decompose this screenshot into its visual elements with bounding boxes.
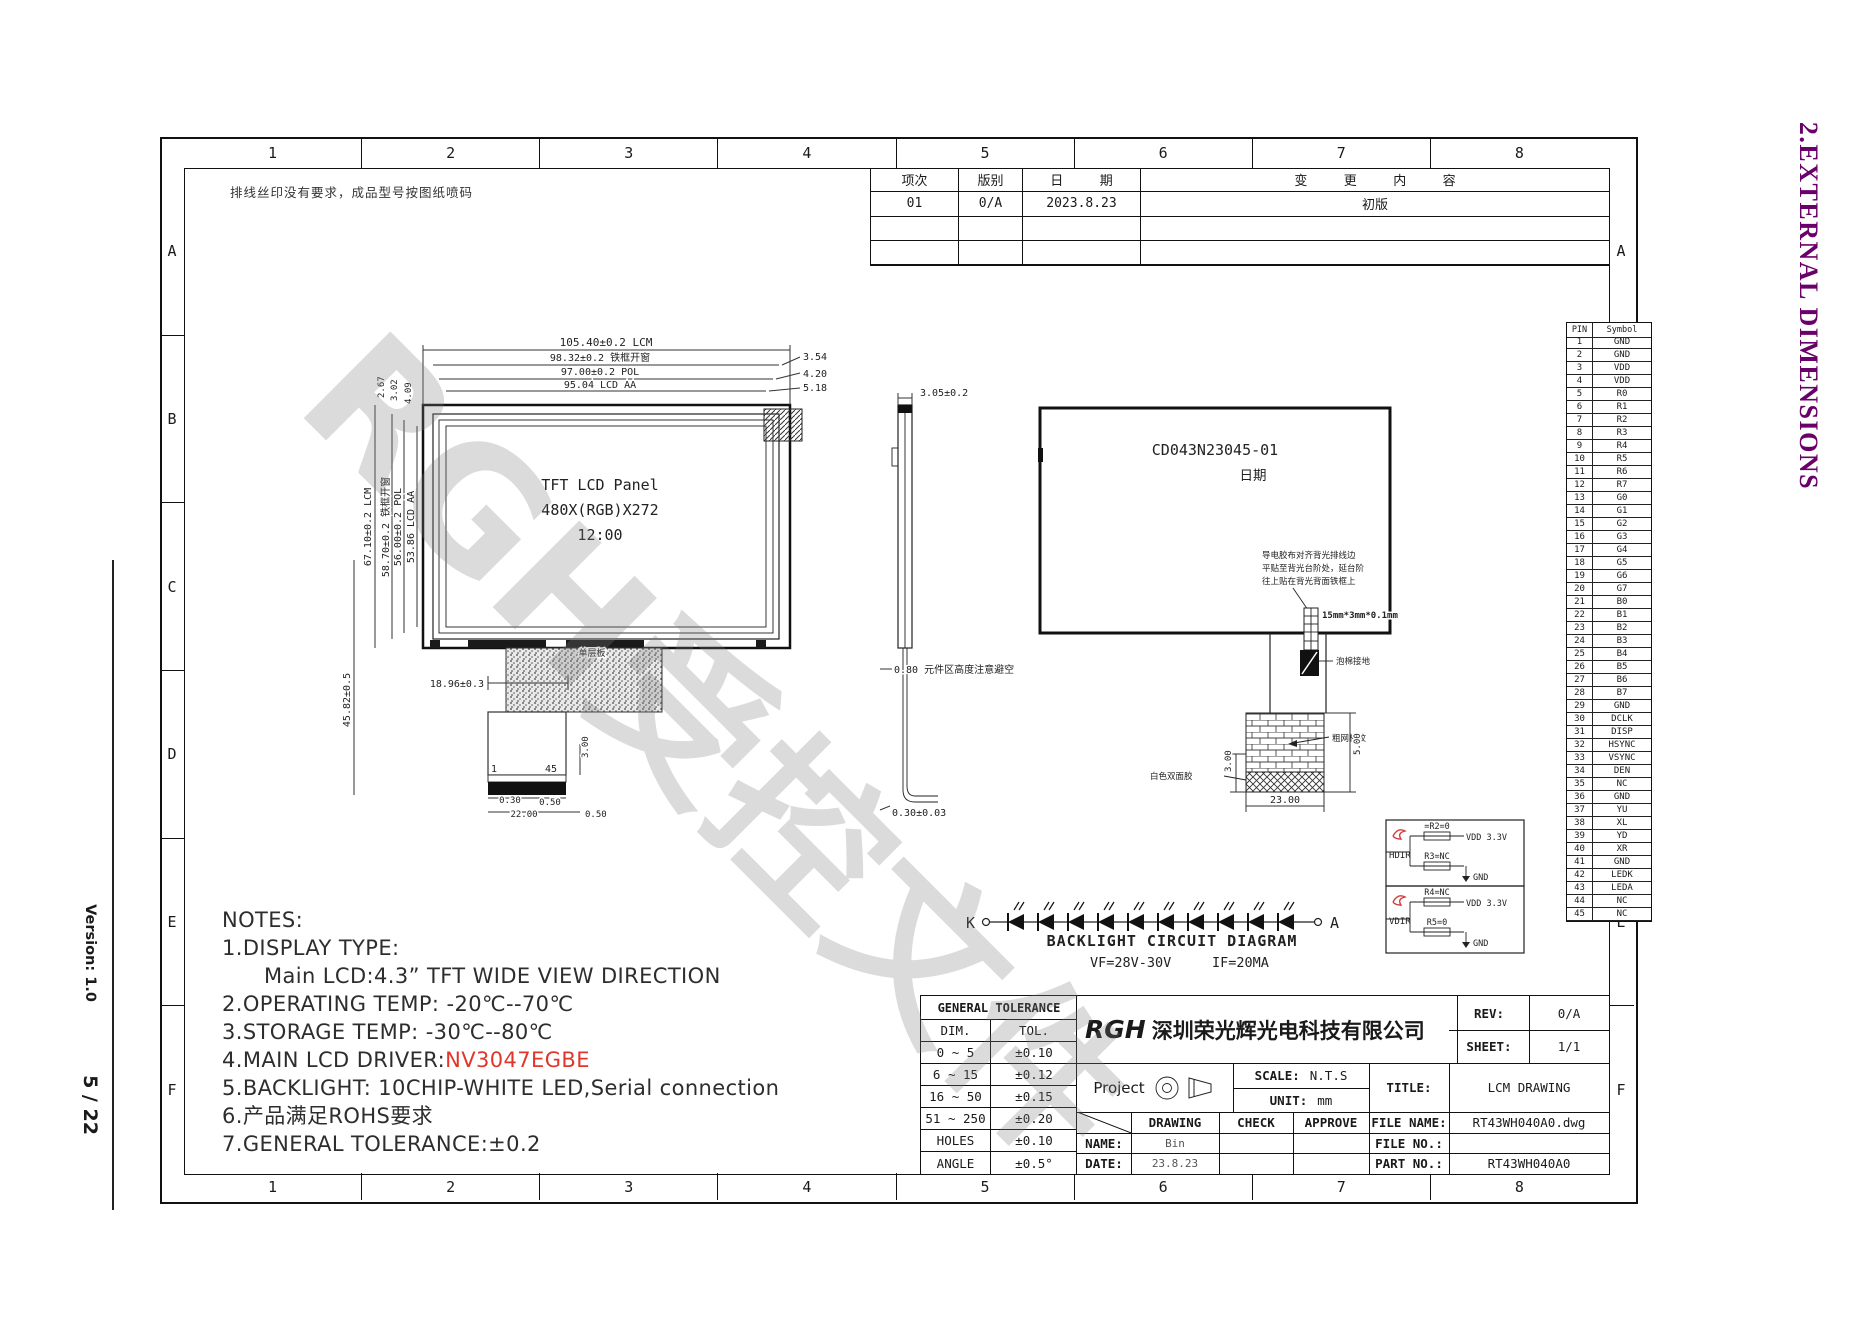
pin-number: 44 [1567,895,1593,908]
backlight-circuit: K A BACKLIGHT CIRCUIT DIAGRAM VF=28V-30V… [966,902,1339,971]
pin-symbol: GND [1593,349,1651,362]
pin-number: 15 [1567,518,1593,531]
pin-number: 2 [1567,349,1593,362]
panel-text-3: 12:00 [577,526,622,544]
pin-symbol: VDD [1593,362,1651,375]
tolerance-header: TOL. [991,1020,1077,1042]
pin-symbol: B3 [1593,635,1651,648]
pin-symbol: NC [1593,895,1651,908]
pin-symbol: R2 [1593,414,1651,427]
pin-symbol: NC [1593,778,1651,791]
company-name: 深圳荣光辉光电科技有限公司 [1152,1015,1425,1045]
rear-dim-300: 3.00 [1224,750,1234,772]
pin-number: 34 [1567,765,1593,778]
led-icon [1038,914,1054,930]
rear-note-1: 导电胶布对齐背光排线边 [1262,550,1356,561]
backlight-vf: VF=28V-30V [1090,955,1171,971]
note-line: 6.产品满足ROHS要求 [222,1102,862,1130]
notes-block: NOTES: 1.DISPLAY TYPE:Main LCD:4.3” TFT … [222,906,862,1158]
dim-top-pol: 97.00±0.2 POL [561,367,639,378]
rear-note-3: 往上贴在背光背面铁框上 [1262,576,1356,587]
backlight-if: IF=20MA [1212,955,1269,971]
rear-tape-label: 15mm*3mm*0.1mm [1322,611,1398,621]
rev-value: 0/A [1529,996,1609,1031]
tolerance-header: DIM. [921,1020,991,1042]
pin-number: 31 [1567,726,1593,739]
pin-number: 12 [1567,479,1593,492]
dim-050b: 0.50 [585,810,607,820]
pin-symbol: B4 [1593,648,1651,661]
sheet-value: 1/1 [1529,1030,1609,1064]
pin-number: 33 [1567,752,1593,765]
dim-right-3: 5.18 [803,383,827,394]
note-line: 7.GENERAL TOLERANCE:±0.2 [222,1130,862,1158]
projection-symbol-icon [1153,1072,1217,1104]
panel-text-1: TFT LCD Panel [541,476,658,494]
pin-number: 29 [1567,700,1593,713]
pin-number: 3 [1567,362,1593,375]
led-icon [1188,914,1204,930]
dim-2200: 22.00 [510,810,537,820]
name-value: Bin [1131,1133,1220,1154]
dim-left-frame: 58.70±0.2 铁框开窗 [379,477,392,577]
date-label: DATE: [1077,1153,1132,1174]
circuit1-r-bot: R3=NC [1424,852,1450,862]
pin-number: 10 [1567,453,1593,466]
pin-symbol: GND [1593,856,1651,869]
pin-symbol: G7 [1593,583,1651,596]
pin-symbol: B1 [1593,609,1651,622]
pin-number: 21 [1567,596,1593,609]
pin-number: 5 [1567,388,1593,401]
pin-symbol: LEDA [1593,882,1651,895]
note-line: 3.STORAGE TEMP: -30℃--80℃ [222,1018,862,1046]
pin-number: 41 [1567,856,1593,869]
pin-symbol: NC [1593,908,1651,921]
dim-left-pol: 56.00±0.2 POL [393,488,404,566]
pin-number: 36 [1567,791,1593,804]
pin-symbol: G1 [1593,505,1651,518]
backlight-title: BACKLIGHT CIRCUIT DIAGRAM [1047,932,1298,950]
fpc-pin-last: 45 [545,764,557,775]
pin-number: 18 [1567,557,1593,570]
pin-symbol: G5 [1593,557,1651,570]
pin-symbol: R7 [1593,479,1651,492]
pin-number: 35 [1567,778,1593,791]
tolerance-cell: ±0.10 [991,1042,1077,1064]
tolerance-grid: DIM.TOL.0 ~ 5±0.106 ~ 15±0.1216 ~ 50±0.1… [921,1020,1077,1174]
company-cell: RGH 深圳荣光辉光电科技有限公司 [1077,996,1458,1064]
pin-symbol: G6 [1593,570,1651,583]
pin-symbol: B7 [1593,687,1651,700]
pin-number: 38 [1567,817,1593,830]
pin-number: 16 [1567,531,1593,544]
fpc-pin-first: 1 [491,764,497,775]
tolerance-cell: HOLES [921,1130,991,1152]
pin-symbol: XL [1593,817,1651,830]
circuit2-vdd: VDD 3.3V [1466,899,1507,909]
tolerance-cell: 0 ~ 5 [921,1042,991,1064]
pin-number: 43 [1567,882,1593,895]
tolerance-cell: ±0.20 [991,1108,1077,1130]
option-circuits: HDIR =R2=0 VDD 3.3V R3=NC GND VDIR R4=NC… [1386,820,1524,953]
project-label: Project [1093,1079,1144,1097]
pin-number: 26 [1567,661,1593,674]
circuit2-r-bot: R5=0 [1427,918,1447,928]
circuit1-gnd: GND [1473,873,1488,883]
led-icon [1068,914,1084,930]
pin-symbol: GND [1593,791,1651,804]
pin-number: 42 [1567,869,1593,882]
pin-number: 11 [1567,466,1593,479]
pin-table: PINSymbol1GND2GND3VDD4VDD5R06R17R28R39R4… [1566,322,1652,922]
note-line: 5.BACKLIGHT: 10CHIP-WHITE LED,Serial con… [222,1074,862,1102]
pin-number: 25 [1567,648,1593,661]
pin-symbol: YU [1593,804,1651,817]
file-no-label: FILE NO.: [1369,1133,1450,1154]
date-value: 23.8.23 [1131,1153,1220,1174]
note-text: 1.DISPLAY TYPE: [222,936,399,960]
check-name-cell [1219,1133,1294,1154]
pin-symbol: DISP [1593,726,1651,739]
pin-number: 4 [1567,375,1593,388]
pin-number: 20 [1567,583,1593,596]
side-dim-component: 0.80 元件区高度注意避空 [894,663,1014,676]
file-name-value: RT43WH040A0.dwg [1449,1112,1609,1134]
pin-number: 23 [1567,622,1593,635]
dim-top-aa: 95.04 LCD AA [564,380,636,391]
drawing-label: DRAWING [1131,1112,1220,1134]
note-line: 1.DISPLAY TYPE: [222,934,862,962]
pin-symbol: R1 [1593,401,1651,414]
sheet-label: SHEET: [1449,1030,1530,1064]
pin-number: 14 [1567,505,1593,518]
scale-cell: SCALE: N.T.S [1233,1063,1370,1089]
led-icon [1248,914,1264,930]
title-block: RGH 深圳荣光辉光电科技有限公司 REV: 0/A SHEET: 1/1 Pr… [1076,995,1610,1175]
pin-symbol: DEN [1593,765,1651,778]
slash-cell [1077,1112,1132,1134]
unit-label: UNIT: [1270,1093,1308,1108]
led-icon [1158,914,1174,930]
unit-value: mm [1317,1093,1332,1108]
rear-date-label: 日期 [1240,468,1267,484]
rear-dim-2300: 23.00 [1270,795,1300,806]
dim-right-1: 3.54 [803,352,827,363]
pin-symbol: VSYNC [1593,752,1651,765]
front-view: 105.40±0.2 LCM 98.32±0.2 铁框开窗 97.00±0.2 … [342,336,827,820]
note-text: 7.GENERAL TOLERANCE:±0.2 [222,1132,541,1156]
pin-symbol: R3 [1593,427,1651,440]
red-mark-icon [1393,896,1405,905]
dim-030: 0.30 [499,796,521,806]
backlight-a-label: A [1330,914,1339,932]
pin-symbol: G3 [1593,531,1651,544]
pin-symbol: R0 [1593,388,1651,401]
pin-symbol: DCLK [1593,713,1651,726]
notes-title: NOTES: [222,906,862,934]
pin-number: 8 [1567,427,1593,440]
pin-symbol: YD [1593,830,1651,843]
led-icon [1128,914,1144,930]
title-label: TITLE: [1369,1063,1450,1113]
pin-number: 24 [1567,635,1593,648]
led-chain [1008,902,1294,931]
note-highlight: NV3047EGBE [445,1048,590,1072]
pin-number: 45 [1567,908,1593,921]
file-name-label: FILE NAME: [1369,1112,1450,1134]
rear-white-tape-label: 白色双面胶 [1150,771,1193,782]
dim-fpc-width: 18.96±0.3 [430,679,484,690]
project-cell: Project [1077,1063,1234,1113]
circuit1-r-top: =R2=0 [1424,822,1450,832]
circuit1-vdd: VDD 3.3V [1466,833,1507,843]
dim-300: 3.00 [581,736,591,758]
drawing-sheet: 2.EXTERNAL DIMENSIONS Version: 1.0 5 / 2… [0,0,1871,1323]
pin-symbol: G4 [1593,544,1651,557]
company-logo: RGH [1085,1015,1146,1044]
note-line: 2.OPERATING TEMP: -20℃--70℃ [222,990,862,1018]
pin-number: 39 [1567,830,1593,843]
pin-number: 32 [1567,739,1593,752]
pin-symbol: G0 [1593,492,1651,505]
pin-number: 28 [1567,687,1593,700]
pin-number: 7 [1567,414,1593,427]
pin-symbol: LEDK [1593,869,1651,882]
tolerance-table: GENERAL TOLERANCE DIM.TOL.0 ~ 5±0.106 ~ … [920,995,1078,1175]
dim-top-lcm: 105.40±0.2 LCM [560,336,653,349]
side-dim-bottom: 0.30±0.03 [892,808,946,819]
red-mark-icon [1393,830,1405,839]
fpc-layer-label: 单层板 [578,647,605,659]
pin-symbol: G2 [1593,518,1651,531]
file-no-value [1449,1133,1609,1154]
scale-value: N.T.S [1310,1068,1348,1083]
dim-ls3: 4.09 [404,382,414,404]
circuit2-r-top: R4=NC [1424,888,1450,898]
pin-symbol: GND [1593,336,1651,349]
pin-number: 27 [1567,674,1593,687]
pin-symbol: B0 [1593,596,1651,609]
approve-label: APPROVE [1293,1112,1370,1134]
unit-cell: UNIT: mm [1233,1088,1370,1113]
part-no-value: RT43WH040A0 [1449,1153,1609,1174]
pin-number: 40 [1567,843,1593,856]
rear-note-2: 平贴至背光台阶处，延台阶 [1262,563,1365,574]
pin-symbol: B5 [1593,661,1651,674]
tolerance-cell: 16 ~ 50 [921,1086,991,1108]
dim-total-height: 45.82±0.5 [342,673,353,727]
circuit2-gnd: GND [1473,939,1488,949]
circuit1-name: HDIR [1389,851,1411,861]
note-text: 4.MAIN LCD DRIVER: [222,1048,445,1072]
rev-label: REV: [1449,996,1530,1031]
pin-number: 9 [1567,440,1593,453]
pin-symbol: R6 [1593,466,1651,479]
pin-symbol: VDD [1593,375,1651,388]
pin-symbol: R4 [1593,440,1651,453]
pin-symbol: B2 [1593,622,1651,635]
pin-symbol: B6 [1593,674,1651,687]
pin-number: 22 [1567,609,1593,622]
pin-number: 6 [1567,401,1593,414]
note-text: 5.BACKLIGHT: 10CHIP-WHITE LED,Serial con… [222,1076,779,1100]
led-icon [1098,914,1114,930]
panel-text-2: 480X(RGB)X272 [541,501,658,519]
part-no-label: PART NO.: [1369,1153,1450,1174]
side-view: 3.05±0.2 0.80 元件区高度注意避空 0.30±0.03 [880,388,1014,819]
backlight-k-label: K [966,914,975,932]
title-value: LCM DRAWING [1449,1063,1609,1113]
tolerance-cell: 51 ~ 250 [921,1108,991,1130]
pin-number: 17 [1567,544,1593,557]
name-label: NAME: [1077,1133,1132,1154]
check-date-cell [1219,1153,1294,1174]
tolerance-cell: ±0.15 [991,1086,1077,1108]
led-icon [1278,914,1294,930]
pin-number: 1 [1567,336,1593,349]
rear-dim-500: 5.00 [1353,733,1363,755]
dim-top-frame: 98.32±0.2 铁框开窗 [550,351,650,364]
led-icon [1218,914,1234,930]
approve-name-cell [1293,1133,1370,1154]
dim-left-aa: 53.86 LCD AA [406,491,417,563]
rear-ground-label: 泡棉接地 [1336,656,1371,667]
tolerance-cell: 6 ~ 15 [921,1064,991,1086]
pin-symbol: HSYNC [1593,739,1651,752]
led-icon [1008,914,1024,930]
note-text: 6.产品满足ROHS要求 [222,1104,433,1128]
note-line: Main LCD:4.3” TFT WIDE VIEW DIRECTION [222,962,862,990]
scale-label: SCALE: [1255,1068,1300,1083]
side-dim-top: 3.05±0.2 [920,388,968,399]
pin-number: 13 [1567,492,1593,505]
pin-number: 30 [1567,713,1593,726]
dim-ls1: 2.67 [377,376,387,398]
pin-symbol: GND [1593,700,1651,713]
pin-number: 19 [1567,570,1593,583]
note-text: 3.STORAGE TEMP: -30℃--80℃ [222,1020,553,1044]
note-text: Main LCD:4.3” TFT WIDE VIEW DIRECTION [264,964,721,988]
tolerance-cell: ±0.5° [991,1152,1077,1174]
pin-number: 37 [1567,804,1593,817]
dim-050a: 0.50 [539,798,561,808]
rear-view: CD043N23045-01 日期 导电胶布对齐背光排线边 平贴至背光台阶处，延… [1038,408,1398,812]
tolerance-cell: ±0.10 [991,1130,1077,1152]
pin-symbol: XR [1593,843,1651,856]
tolerance-title: GENERAL TOLERANCE [921,996,1077,1020]
rear-model: CD043N23045-01 [1152,441,1278,459]
dim-left-lcm: 67.10±0.2 LCM [363,488,374,566]
dim-right-2: 4.20 [803,369,827,380]
note-line: 4.MAIN LCD DRIVER:NV3047EGBE [222,1046,862,1074]
approve-date-cell [1293,1153,1370,1174]
circuit2-name: VDIR [1389,917,1411,927]
pin-symbol: R5 [1593,453,1651,466]
dim-ls2: 3.02 [390,379,400,401]
note-text: 2.OPERATING TEMP: -20℃--70℃ [222,992,573,1016]
tolerance-cell: ANGLE [921,1152,991,1174]
check-label: CHECK [1219,1112,1294,1134]
tolerance-cell: ±0.12 [991,1064,1077,1086]
